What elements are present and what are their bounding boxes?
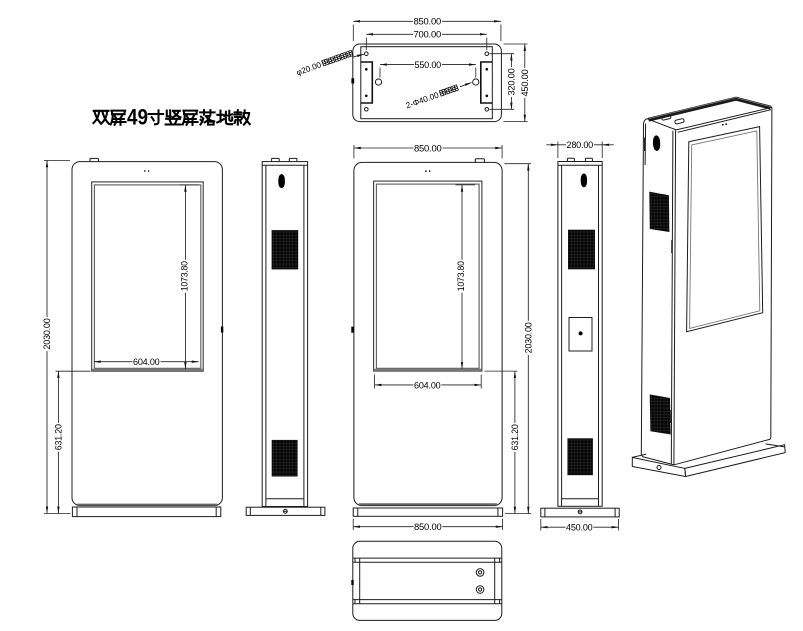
svg-text:φ20.00: φ20.00 (295, 60, 323, 77)
svg-text:280.00: 280.00 (567, 140, 594, 150)
svg-text:850.00: 850.00 (414, 143, 442, 153)
svg-text:631.20: 631.20 (510, 424, 520, 450)
svg-text:49: 49 (127, 105, 148, 130)
svg-text:450.00: 450.00 (520, 69, 530, 96)
svg-text:2030.00: 2030.00 (42, 318, 52, 349)
svg-text:700.00: 700.00 (414, 30, 442, 40)
svg-text:1073.80: 1073.80 (456, 261, 466, 291)
svg-text:2030.00: 2030.00 (524, 322, 534, 353)
svg-text:1073.80: 1073.80 (180, 261, 190, 291)
svg-text:604.00: 604.00 (133, 357, 160, 367)
svg-text:850.00: 850.00 (414, 17, 442, 27)
svg-text:450.00: 450.00 (566, 523, 593, 533)
svg-text:631.20: 631.20 (54, 424, 64, 450)
svg-text:2-Φ40.00: 2-Φ40.00 (405, 90, 441, 110)
svg-text:320.00: 320.00 (507, 68, 517, 95)
svg-text:604.00: 604.00 (414, 380, 441, 390)
svg-text:550.00: 550.00 (415, 60, 442, 70)
svg-text:850.00: 850.00 (414, 522, 442, 532)
